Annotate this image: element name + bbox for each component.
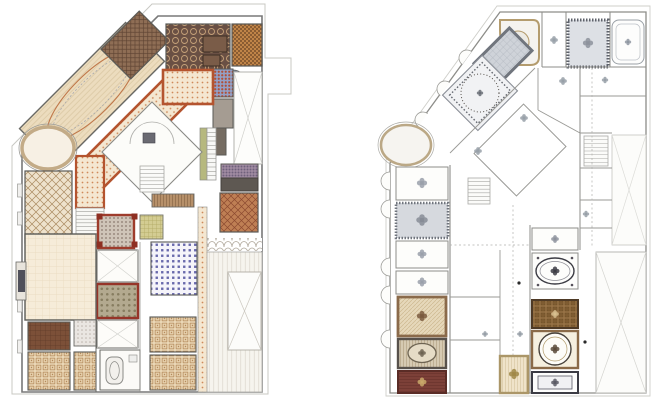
bathtub xyxy=(106,357,123,384)
floor-finishes-plan xyxy=(12,4,291,394)
speckle-room xyxy=(74,320,96,346)
blue-tile-room xyxy=(151,242,197,295)
corner-ornament xyxy=(537,257,540,260)
floor-plan-drawing xyxy=(0,0,656,411)
terrace-lightwell xyxy=(228,272,261,350)
bay-window xyxy=(381,330,390,348)
fireplace-hearth xyxy=(18,270,25,292)
column-dot xyxy=(583,340,586,343)
border-corner xyxy=(97,214,103,220)
red-diamond-carpet-room xyxy=(220,193,258,232)
coffered-floor-room xyxy=(74,352,96,390)
void-room xyxy=(97,320,138,348)
window-bay xyxy=(18,340,23,353)
lightwell-small xyxy=(612,135,646,245)
service-stairs xyxy=(207,128,216,180)
mosaic-room xyxy=(212,69,233,97)
grand-salon xyxy=(25,234,96,320)
window-bay xyxy=(18,299,23,312)
dark-band-room xyxy=(221,178,258,191)
stair-flight xyxy=(140,166,164,192)
lightwell-large xyxy=(596,252,646,393)
awning-scallop-band xyxy=(206,238,262,251)
oval-salon xyxy=(381,125,431,165)
ceiling-plan xyxy=(378,6,650,396)
floor-plans-canvas xyxy=(0,0,656,411)
border-corner xyxy=(132,214,138,220)
service-room xyxy=(213,99,233,128)
checker-carpet-room xyxy=(232,24,262,66)
corner-ornament xyxy=(537,284,540,287)
wood-floor-corridor xyxy=(152,194,194,207)
mauve-mosaic-band xyxy=(221,164,258,178)
border-corner xyxy=(132,242,138,248)
sink xyxy=(129,355,137,362)
bordered-salon-2 xyxy=(97,284,138,318)
grand-corridor-landing xyxy=(163,70,213,104)
oval-salon xyxy=(22,127,74,169)
window-bay xyxy=(18,212,23,225)
elevator xyxy=(143,133,155,143)
billiard-table xyxy=(203,36,227,52)
lightwell xyxy=(234,72,262,164)
grand-corridor-south xyxy=(76,156,104,208)
trellis-mosaic-room xyxy=(25,171,72,243)
stair-flight xyxy=(468,178,490,204)
table xyxy=(203,55,220,66)
bay-window xyxy=(381,258,390,276)
corner-ornament xyxy=(571,257,574,260)
void-room xyxy=(97,250,138,282)
mosaic-square-room xyxy=(140,215,163,239)
window-bay xyxy=(18,184,23,197)
bay-window xyxy=(381,200,390,218)
stair-flight xyxy=(584,136,608,166)
coffered-floor-room xyxy=(28,352,70,390)
border-corner xyxy=(97,242,103,248)
gallery-strip xyxy=(198,207,207,392)
coffered-floor-room xyxy=(150,317,196,352)
bordered-salon xyxy=(98,215,134,248)
coffered-floor-room xyxy=(150,355,196,390)
bay-window xyxy=(381,172,390,190)
stair-runner xyxy=(200,128,207,180)
corner-ornament xyxy=(571,284,574,287)
bay-window xyxy=(381,286,390,304)
column-dot xyxy=(517,281,520,284)
brown-carpet-room xyxy=(28,322,70,350)
